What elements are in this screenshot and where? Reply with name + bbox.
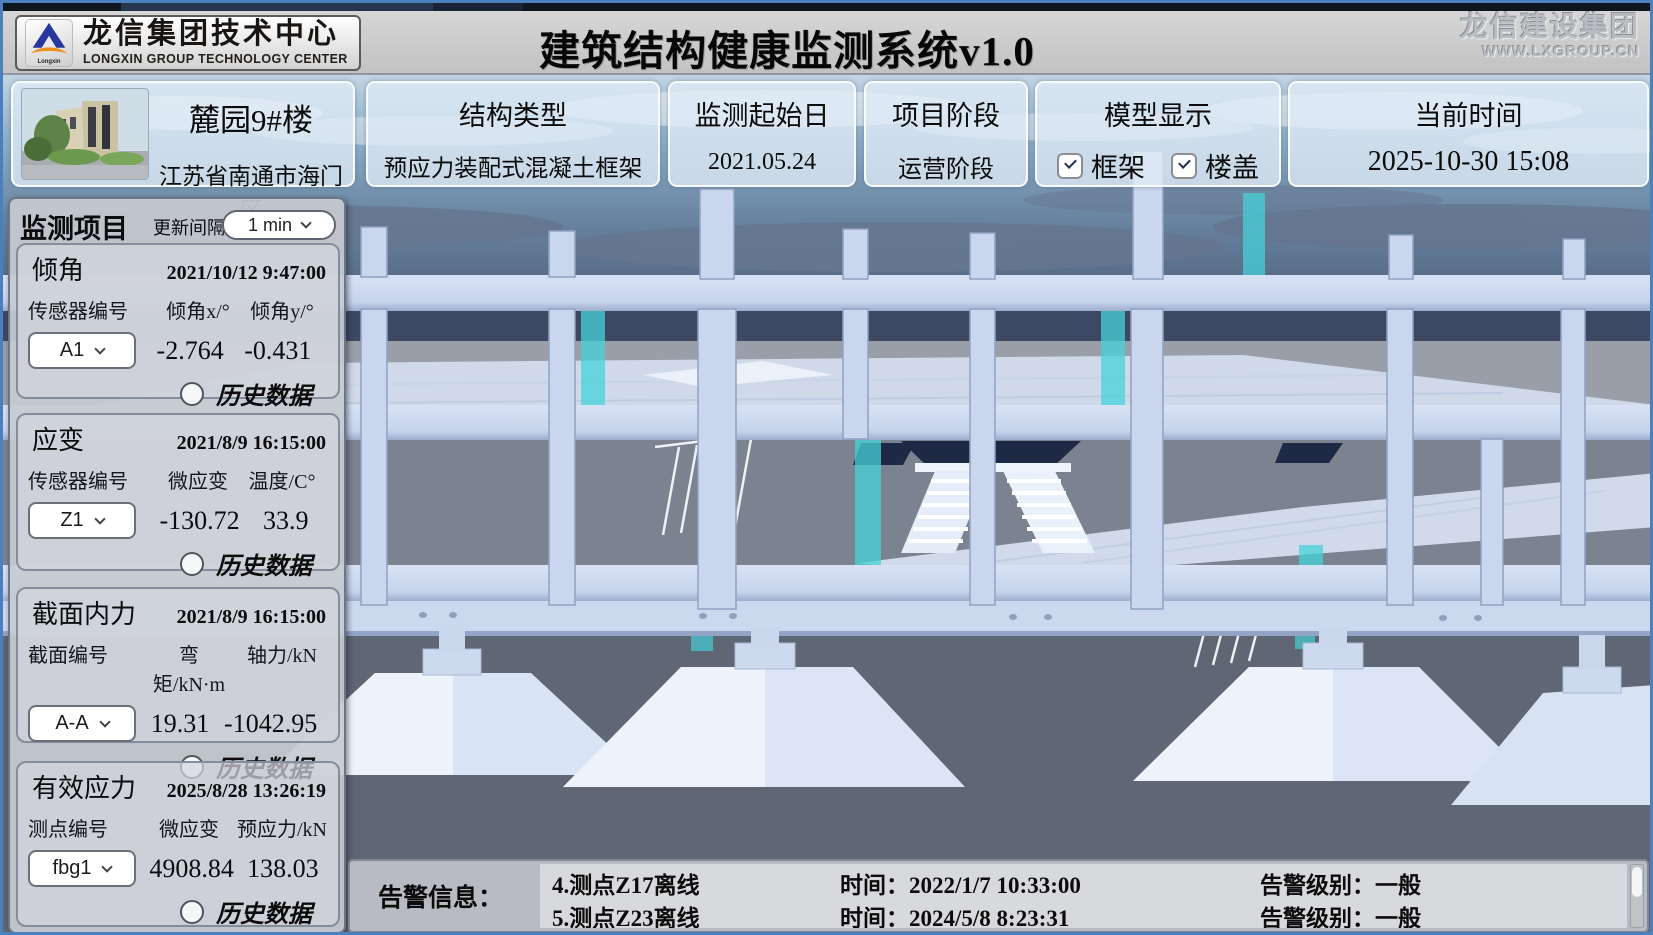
building-name: 麓园9#楼 [153,95,349,140]
alert-scrollbar[interactable] [1630,864,1644,928]
current-time-value: 2025-10-30 15:08 [1290,146,1647,178]
top-strip-segment [433,3,523,11]
col-header: 温度/C° [234,465,330,494]
top-strip-segment [121,3,433,11]
alert-list[interactable]: 4.测点Z17离线 时间：2022/1/7 10:33:00 告警级别：一般 5… [540,864,1627,928]
alert-row: 4.测点Z17离线 时间：2022/1/7 10:33:00 告警级别：一般 [540,866,1627,899]
panel-strain: 应变 2021/8/9 16:15:00 传感器编号 微应变 温度/C° Z1 … [16,413,340,571]
card-value: 运营阶段 [866,149,1026,184]
value-axial: -1042.95 [224,709,317,739]
value-temp: 33.9 [263,506,309,536]
check-icon [1064,156,1077,169]
company-logo-icon: Longxin [25,19,73,67]
interval-value: 1 min [248,215,292,236]
panel-section-force: 截面内力 2021/8/9 16:15:00 截面编号 弯矩/kN·m 轴力/k… [16,587,340,743]
col-header: 测点编号 [28,813,144,842]
panel-timestamp: 2021/8/9 16:15:00 [177,606,326,629]
alert-row: 5.测点Z23离线 时间：2024/5/8 8:23:31 告警级别：一般 [540,899,1627,928]
card-label: 当前时间 [1290,94,1647,133]
watermark-url: WWW.LXGROUP.CN [1460,44,1640,61]
checkbox-floor[interactable] [1171,153,1197,179]
building-card: 麓园9#楼 江苏省南通市海门区 [11,81,355,187]
section-select[interactable]: A-A [28,705,136,742]
panel-title: 应变 [32,420,84,457]
alert-time: 时间：2022/1/7 10:33:00 [840,866,1260,900]
card-label: 项目阶段 [866,94,1026,133]
card-model-display: 模型显示 框架 楼盖 [1035,81,1281,187]
chevron-down-icon [102,861,113,872]
brand-name-en: LONGXIN GROUP TECHNOLOGY CENTER [83,53,348,66]
card-value: 2021.05.24 [670,149,854,176]
selected-sensor: Z1 [60,509,83,532]
check-icon [1178,156,1191,169]
panel-effective-stress: 有效应力 2025/8/28 13:26:19 测点编号 微应变 预应力/kN … [16,761,340,927]
col-header: 弯矩/kN·m [144,639,234,697]
col-header: 截面编号 [28,639,144,697]
alert-name: 4.测点Z17离线 [540,866,840,900]
value-x: -2.764 [157,336,224,366]
card-label: 结构类型 [368,94,658,133]
card-project-phase: 项目阶段 运营阶段 [864,81,1028,187]
logo-panel: Longxin 龙信集团技术中心 LONGXIN GROUP TECHNOLOG… [15,15,361,71]
col-header: 传感器编号 [28,465,162,494]
history-label: 历史数据 [216,894,312,929]
header-bar: Longxin 龙信集团技术中心 LONGXIN GROUP TECHNOLOG… [3,11,1650,75]
checkbox-frame[interactable] [1057,153,1083,179]
alert-level: 告警级别：一般 [1260,899,1421,929]
col-header: 预应力/kN [234,813,330,842]
selected-section: A-A [55,712,88,735]
card-value: 预应力装配式混凝土框架 [368,149,658,183]
chevron-down-icon [300,217,311,228]
history-radio[interactable] [180,552,204,576]
app-window: Longxin 龙信集团技术中心 LONGXIN GROUP TECHNOLOG… [0,0,1653,935]
col-header: 轴力/kN [234,639,330,697]
watermark: 龙信建设集团 WWW.LXGROUP.CN [1460,13,1640,60]
card-current-time: 当前时间 2025-10-30 15:08 [1288,81,1649,187]
point-select[interactable]: fbg1 [28,850,136,887]
panel-title: 倾角 [32,250,84,287]
checkbox-frame-label: 框架 [1091,146,1145,185]
watermark-company: 龙信建设集团 [1460,13,1640,44]
card-label: 模型显示 [1037,94,1279,133]
selected-sensor: A1 [60,339,84,362]
panel-timestamp: 2021/8/9 16:15:00 [177,432,326,455]
scrollbar-thumb[interactable] [1632,867,1642,897]
sidebar-title: 监测项目 [20,207,128,246]
checkbox-floor-label: 楼盖 [1205,146,1259,185]
history-label: 历史数据 [216,546,312,581]
alert-bar: 告警信息： 4.测点Z17离线 时间：2022/1/7 10:33:00 告警级… [348,859,1649,933]
sensor-select-strain[interactable]: Z1 [28,502,136,539]
col-header: 倾角x/° [162,295,234,324]
card-structure-type: 结构类型 预应力装配式混凝土框架 [366,81,660,187]
col-header: 微应变 [144,813,234,842]
chevron-down-icon [94,513,105,524]
card-monitor-start: 监测起始日 2021.05.24 [668,81,856,187]
card-label: 监测起始日 [670,94,854,133]
selected-point: fbg1 [53,857,92,880]
interval-select[interactable]: 1 min [222,210,336,240]
interval-label: 更新间隔 [153,214,225,240]
panel-timestamp: 2025/8/28 13:26:19 [167,780,326,803]
page-title: 建筑结构健康监测系统v1.0 [437,17,1137,77]
brand-name-cn: 龙信集团技术中心 [83,20,348,49]
value-strain: -130.72 [159,506,239,536]
monitoring-sidebar: 监测项目 更新间隔 1 min 倾角 2021/10/12 9:47:00 传感… [8,197,346,934]
col-header: 传感器编号 [28,295,162,324]
svg-text:Longxin: Longxin [37,59,60,65]
history-label: 历史数据 [216,376,312,411]
alert-name: 5.测点Z23离线 [540,899,840,929]
col-header: 微应变 [162,465,234,494]
history-radio[interactable] [180,382,204,406]
brand-text: 龙信集团技术中心 LONGXIN GROUP TECHNOLOGY CENTER [83,20,348,66]
chevron-down-icon [95,343,106,354]
alert-level: 告警级别：一般 [1260,866,1421,900]
chevron-down-icon [99,716,110,727]
value-prestress: 138.03 [247,854,319,884]
panel-title: 截面内力 [32,594,136,631]
value-y: -0.431 [244,336,311,366]
top-strip [3,3,1650,11]
col-header: 倾角y/° [234,295,330,324]
value-microstrain: 4908.84 [149,854,234,884]
building-photo [21,88,149,180]
alert-time: 时间：2024/5/8 8:23:31 [840,899,1260,929]
panel-title: 有效应力 [32,768,136,805]
value-moment: 19.31 [151,709,210,739]
panel-tilt: 倾角 2021/10/12 9:47:00 传感器编号 倾角x/° 倾角y/° … [16,243,340,399]
sensor-select-tilt[interactable]: A1 [28,332,136,369]
history-radio[interactable] [180,900,204,924]
panel-timestamp: 2021/10/12 9:47:00 [167,262,326,285]
alert-label: 告警信息： [378,878,503,914]
